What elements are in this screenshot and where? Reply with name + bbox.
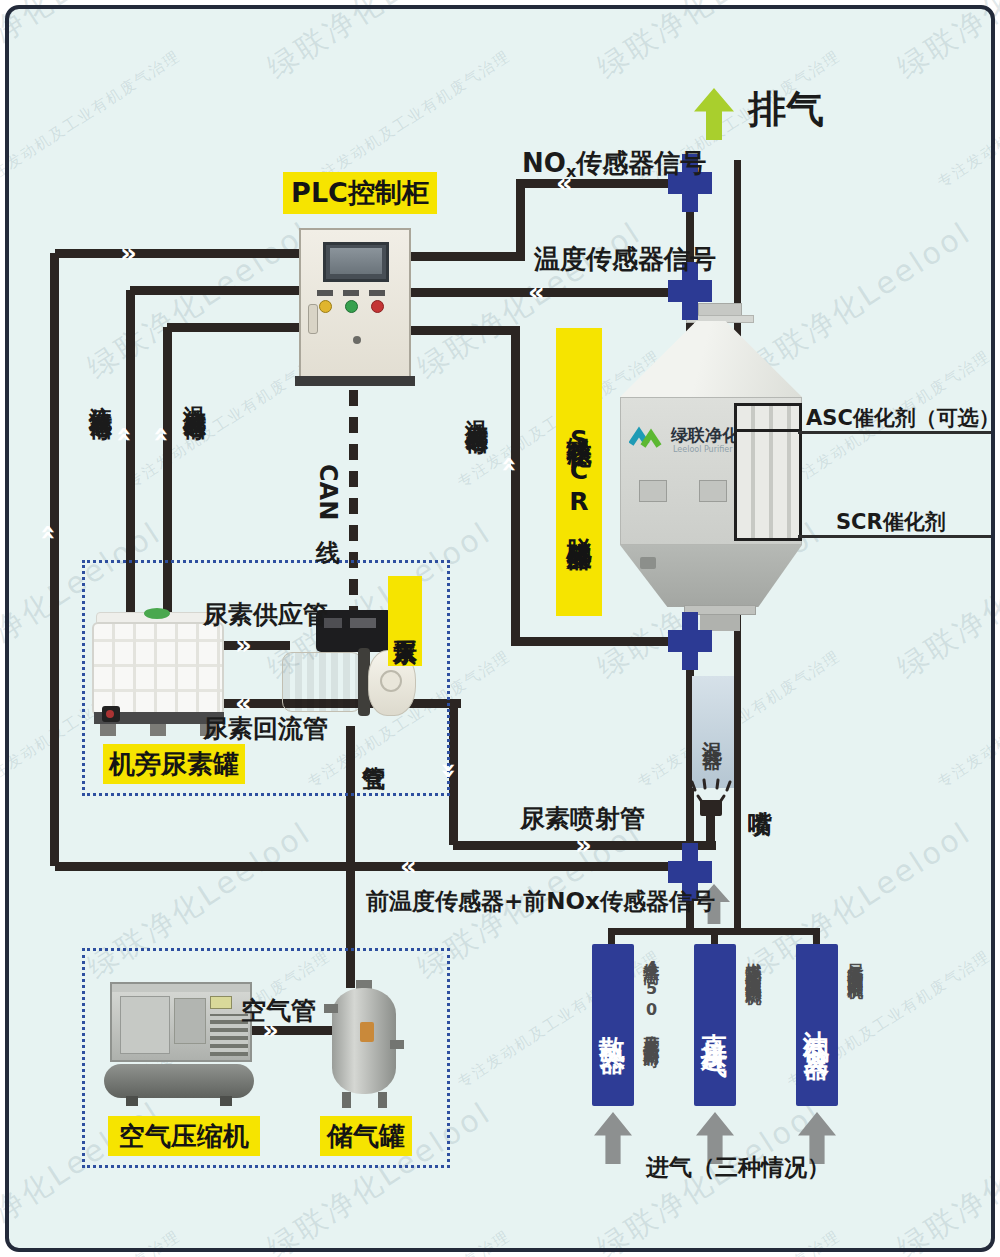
wire-temp-mid-into-plc (404, 326, 519, 335)
airtank-leg-1 (342, 1092, 351, 1108)
chevron-right-icon: » (120, 249, 137, 258)
can-line-label: CAN线 (312, 464, 344, 574)
plc-tag-3 (369, 290, 385, 296)
chevron-up-icon: « (44, 524, 53, 541)
outlet-temp-sensor-connector (668, 612, 712, 670)
chevron-up-icon: « (120, 426, 129, 443)
tote-foot-2 (150, 724, 166, 736)
wire-front-sensors (55, 862, 690, 871)
scr-system-diagram: 绿联净化Leelool专注发动机及工业有机废气治理绿联净化Leelool专注发动… (0, 0, 1000, 1257)
pump-port (380, 670, 402, 692)
wire-temp-mid-bottom (511, 637, 690, 646)
reactor-label: 绿联净化SCR脱硝反应器 (556, 328, 602, 616)
air-pipe-horizontal-label: 空气管 (241, 994, 316, 1027)
tote-valve-handle (106, 710, 114, 718)
chevron-left-icon: « (235, 699, 252, 708)
intake-option-direct: 直接进气 (694, 944, 736, 1106)
chevron-up-icon: « (157, 426, 166, 443)
tank-temp-signal-label: 温度传感器信号 (180, 388, 211, 568)
wire-temp-mid-riser (511, 326, 520, 641)
plc-lock (353, 336, 361, 344)
tote-cap (144, 608, 170, 619)
chevron-up-icon: « (505, 456, 514, 473)
tote-body (92, 622, 224, 716)
reactor-port-2 (699, 480, 727, 502)
plc-button-green (345, 300, 358, 313)
chevron-right-icon: » (575, 841, 592, 850)
air-storage-tank (326, 980, 404, 1112)
reactor-hopper (620, 545, 802, 607)
chevron-left-icon: « (528, 288, 545, 297)
urea-return-label: 尿素回流管 (203, 712, 328, 745)
airtank-label (360, 1022, 374, 1042)
intake-note-direct: 燃烧正常的柴油机或燃气内燃机 (742, 950, 765, 1100)
mixer-label: 混合器 (700, 725, 727, 740)
pump-label-2 (350, 618, 376, 628)
plc-button-red (371, 300, 384, 313)
air-compressor (104, 982, 258, 1110)
plc-cabinet (299, 228, 411, 382)
intake-option-radiator: 散热器 (592, 944, 634, 1106)
reactor-catalyst-panel (734, 403, 802, 541)
wire-nox-signal-drop (516, 179, 525, 257)
plc-cabinet-label: PLC控制柜 (283, 172, 437, 214)
air-tank-label: 储气罐 (320, 1116, 412, 1156)
nox-suffix: 传感器信号 (576, 148, 706, 178)
compressor-tank (104, 1064, 254, 1098)
nozzle-tip (700, 800, 722, 816)
wire-nox-signal-into-plc (404, 252, 525, 261)
plc-screen-glass (330, 248, 382, 274)
intake-note-separator: 尾气有喷油倾向的柴油机 (844, 950, 867, 1065)
scr-catalyst-label: SCR催化剂 (836, 508, 946, 536)
chevron-down-icon: « (443, 762, 452, 779)
level-signal-label: 液位传感器信号 (86, 388, 117, 568)
intake-option-separator: 油气分离器 (796, 944, 838, 1106)
urea-injection-label: 尿素喷射管 (520, 802, 645, 835)
urea-pump-label: 尿素泵 (388, 576, 422, 666)
plc-button-yellow (319, 300, 332, 313)
airtank-leg-2 (378, 1092, 387, 1108)
reactor-catalyst-divider (734, 429, 802, 432)
air-compressor-label: 空气压缩机 (108, 1116, 260, 1156)
plc-screen (323, 242, 389, 282)
reactor-roof (620, 321, 802, 397)
reactor-logo-cn: 绿联净化 (671, 424, 739, 447)
chevron-left-icon: « (400, 862, 417, 871)
scr-reactor: 绿联净化 Leelool Purifier (618, 303, 804, 633)
wire-front-signal-riser (50, 253, 59, 866)
compressor-roof (112, 984, 250, 992)
compressor-display (210, 996, 232, 1009)
urea-supply-label: 尿素供应管 (203, 598, 328, 631)
chevron-right-icon: » (262, 1026, 279, 1035)
plc-tag-1 (317, 290, 333, 296)
wire-temp-signal-top (404, 288, 690, 297)
plc-door-handle (308, 304, 318, 334)
front-sensors-label: 前温度传感器+前NOx传感器信号 (366, 886, 715, 917)
chevron-right-icon: » (235, 641, 252, 650)
asc-catalyst-label: ASC催化剂（可选） (806, 404, 1000, 432)
mixer-block: 混合器 (692, 676, 734, 788)
air-pipe-vertical-label: 空气管 (359, 748, 390, 823)
nox-subscript: x (566, 162, 576, 181)
pump-motor (282, 652, 362, 712)
temp-mid-signal-label: 温度传感器信号 (462, 402, 493, 577)
temp-signal-top-label: 温度传感器信号 (534, 242, 716, 277)
compressor-door (120, 996, 170, 1054)
tote-foot-1 (100, 724, 116, 736)
nox-signal-label: NOx传感器信号 (522, 146, 706, 181)
exhaust-label: 排气 (748, 84, 824, 135)
compressor-foot-1 (126, 1096, 138, 1106)
intake-title: 进气（三种情况） (646, 1152, 830, 1183)
reactor-port-1 (639, 480, 667, 502)
nozzle-label: 喷嘴 (744, 792, 776, 872)
plc-tag-2 (343, 290, 359, 296)
compressor-foot-2 (220, 1096, 232, 1106)
nox-prefix: NO (522, 148, 566, 178)
urea-tank-box-label: 机旁尿素罐 (103, 744, 245, 784)
airtank-right-port (390, 1040, 404, 1049)
reactor-drain-stub (640, 557, 656, 569)
compressor-window (174, 998, 206, 1044)
pipe-nozzle-riser (706, 812, 715, 845)
plc-base (295, 376, 415, 386)
airtank-left-port (324, 1004, 338, 1013)
intake-note-radiator: 排温高于450度且不需要余热利用时 (640, 950, 663, 1118)
reactor-logo-en: Leelool Purifier (673, 445, 732, 454)
compressor-cabinet (110, 982, 252, 1062)
leelool-logo-icon (629, 424, 667, 454)
